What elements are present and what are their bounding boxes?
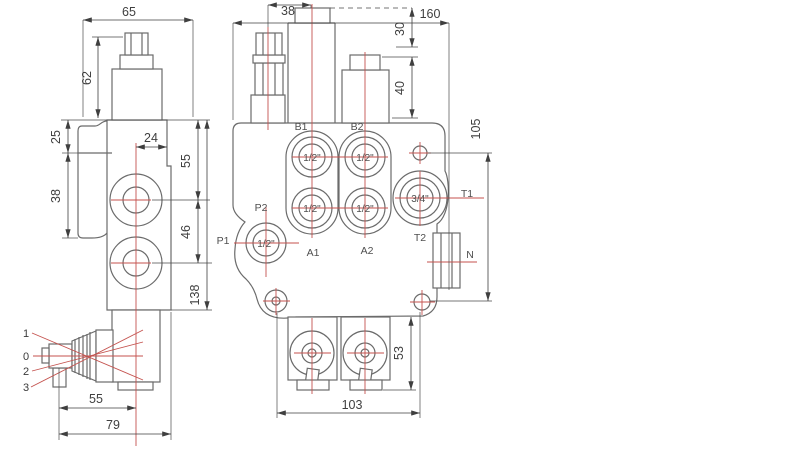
- port-size-a2: 1/2": [356, 204, 374, 215]
- lever-position-2: 2: [23, 366, 29, 378]
- side-flange-outline: [78, 121, 107, 238]
- dim-front-cap-height: 40: [393, 81, 407, 95]
- port-label-a2: A2: [361, 245, 374, 257]
- lever-position-1: 1: [23, 328, 29, 340]
- dim-side-lever-overall: 79: [106, 418, 120, 432]
- relief-collar: [253, 55, 285, 63]
- front-body-outline: [233, 123, 448, 318]
- relief-hex-body: [255, 63, 283, 95]
- port-label-a1: A1: [307, 247, 320, 259]
- dim-front-top-plug-depth: 30: [393, 22, 407, 36]
- dim-side-cap-height: 62: [80, 71, 94, 85]
- lever-position-3: 3: [23, 382, 29, 394]
- spool2-housing: [342, 70, 389, 123]
- lever-position-0: 0: [23, 351, 29, 363]
- cap-base: [112, 69, 162, 120]
- valve-drawing: 65 62 25 38 24 55 46 138 55 79 1 0 2 3 3…: [0, 0, 800, 450]
- port-label-p1: P1: [217, 235, 230, 247]
- port-label-n: N: [466, 249, 474, 261]
- port-label-b1: B1: [295, 121, 308, 133]
- port-size-b1: 1/2": [303, 153, 321, 164]
- clevis-foot-2: [350, 380, 382, 390]
- dim-side-overall-depth: 65: [122, 5, 136, 19]
- dim-front-mount-spacing-v: 105: [469, 119, 483, 140]
- port-size-p1: 1/2": [257, 239, 275, 250]
- dim-side-flange-height: 38: [49, 189, 63, 203]
- dim-side-top-to-port1: 55: [179, 154, 193, 168]
- dim-front-lever-section-height: 53: [392, 346, 406, 360]
- dim-side-port-to-edge: 24: [144, 131, 158, 145]
- dim-side-lever-to-axis: 55: [89, 392, 103, 406]
- lever-knob: [42, 348, 49, 363]
- dim-front-relief-to-spool: 38: [281, 4, 295, 18]
- dim-side-body-height: 138: [188, 285, 202, 306]
- port-label-t2: T2: [414, 232, 426, 244]
- dim-front-mount-spacing-h: 103: [342, 398, 363, 412]
- side-body-outline: [107, 120, 171, 310]
- technical-drawing-canvas: 65 62 25 38 24 55 46 138 55 79 1 0 2 3 3…: [0, 0, 800, 450]
- relief-hex-nut: [256, 33, 282, 55]
- dim-side-port-spacing: 46: [179, 225, 193, 239]
- dim-front-overall-width: 160: [420, 7, 441, 21]
- top-plug: [295, 8, 330, 23]
- dim-side-flange-top-offset: 25: [49, 130, 63, 144]
- left-view: [42, 33, 171, 390]
- port-label-b2: B2: [351, 121, 364, 133]
- lever-bracket-tab: [53, 368, 66, 387]
- port-size-b2: 1/2": [356, 153, 374, 164]
- clevis-foot-1: [297, 380, 329, 390]
- port-size-t1: 3/4": [411, 194, 429, 205]
- cap-collar: [120, 55, 153, 69]
- plug-n-hex: [433, 233, 460, 288]
- port-size-a1: 1/2": [303, 204, 321, 215]
- cap-hex-nut: [125, 33, 148, 55]
- side-lever-housing-foot: [118, 382, 153, 390]
- port-label-t1: T1: [461, 188, 473, 200]
- port-label-p2: P2: [255, 202, 268, 214]
